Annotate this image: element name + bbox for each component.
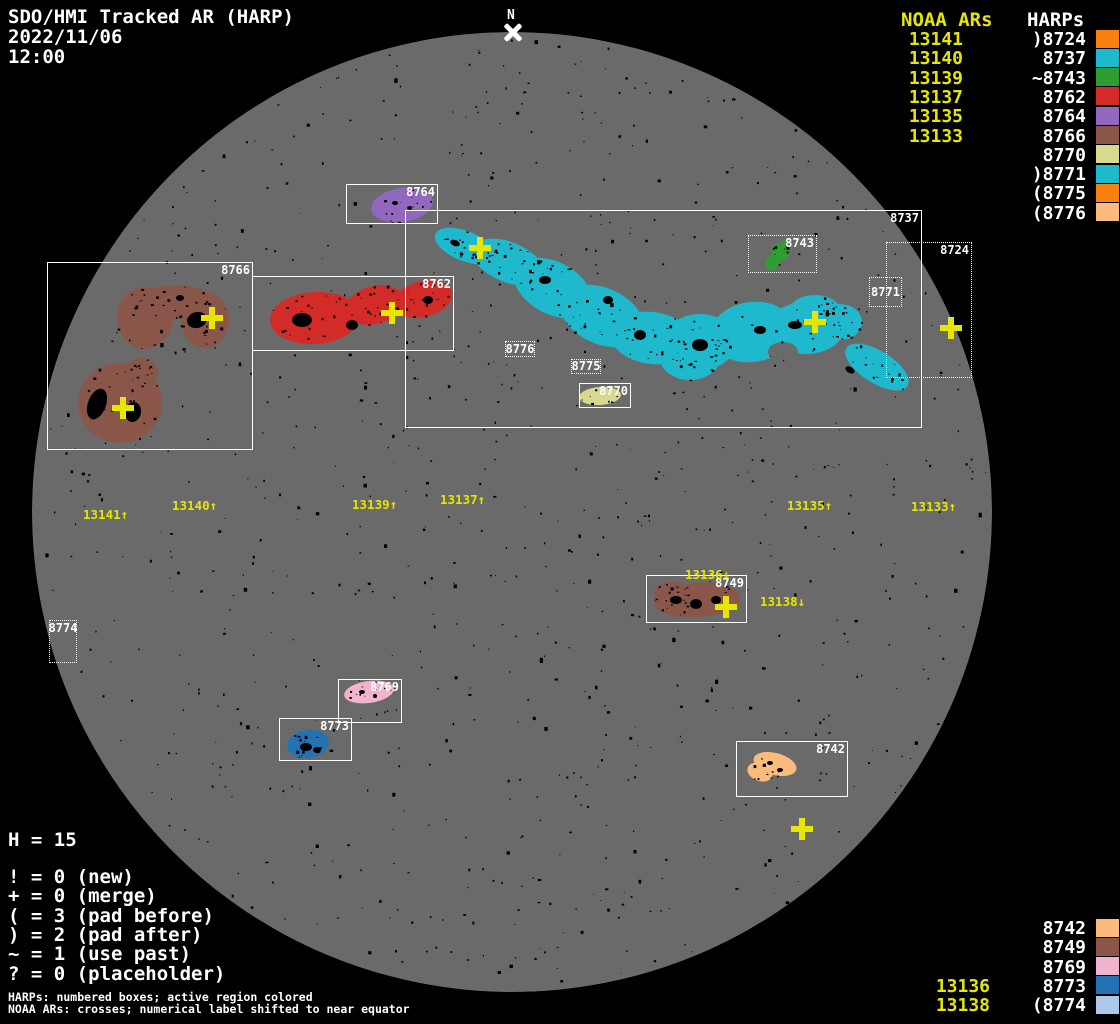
harp-item: (8774	[1022, 995, 1086, 1016]
legend-line: ? = 0 (placeholder)	[8, 963, 225, 985]
noaa-cross-13136	[715, 596, 737, 618]
harp-color-swatch	[1096, 107, 1119, 125]
noaa-ar-label: 13141↑	[83, 507, 128, 522]
harp-box-8724: 8724	[886, 242, 972, 378]
harp-box-label-8764: 8764	[406, 186, 435, 199]
noaa-ar-label: 13133↑	[911, 499, 956, 514]
noaa-cross-13139	[381, 302, 403, 324]
harp-item: 8737	[1022, 48, 1086, 69]
harp-color-swatch	[1096, 976, 1119, 994]
harp-box-label-8766: 8766	[221, 264, 250, 277]
harp-box-label-8742: 8742	[816, 743, 845, 756]
harp-box-8774: 8774	[49, 620, 77, 663]
harp-color-swatch	[1096, 145, 1119, 163]
harp-box-label-8776: 8776	[506, 342, 534, 356]
sdo-hmi-harp-plot: { "colors": { "background": "#000000", "…	[0, 0, 1120, 1024]
harp-box-label-8743: 8743	[785, 237, 814, 250]
harp-color-swatch	[1096, 30, 1119, 48]
noaa-cross-13138	[791, 818, 813, 840]
noaa-ar-label: 13135↑	[787, 498, 832, 513]
harp-item: 8773	[1022, 976, 1086, 997]
noaa-ar-label: 13138↓	[760, 594, 805, 609]
harp-color-swatch	[1096, 126, 1119, 144]
harp-item: )8771	[1022, 164, 1086, 185]
harp-color-swatch	[1096, 68, 1119, 86]
noaa-ar-item: 13137	[903, 87, 963, 108]
noaa-ar-item: 13133	[903, 126, 963, 147]
harp-box-8769: 8769	[338, 679, 402, 723]
harp-box-8775: 8775	[571, 359, 601, 374]
harp-item: 8766	[1022, 126, 1086, 147]
annotation-overlay: 8764876687628737877087498769877387428743…	[0, 0, 1120, 1024]
noaa-ar-label: 13137↑	[440, 492, 485, 507]
noaa-ar-item: 13138	[930, 995, 990, 1016]
plot-time: 12:00	[8, 46, 65, 68]
noaa-ar-label: 13140↑	[172, 498, 217, 513]
harp-color-swatch	[1096, 184, 1119, 202]
harp-box-8776: 8776	[505, 341, 535, 357]
harp-color-swatch	[1096, 87, 1119, 105]
harp-box-8743: 8743	[748, 235, 817, 273]
harp-box-label-8770: 8770	[599, 385, 628, 398]
harp-box-8771: 8771	[869, 277, 902, 307]
harp-box-label-8774: 8774	[50, 621, 76, 662]
harp-item: (8776	[1022, 203, 1086, 224]
harp-count: H = 15	[8, 829, 77, 851]
harp-color-swatch	[1096, 938, 1119, 956]
noaa-ar-label: 13136↓	[685, 567, 730, 582]
noaa-ar-label: 13139↑	[352, 497, 397, 512]
harp-item: 8749	[1022, 937, 1086, 958]
noaa-ar-item: 13140	[903, 48, 963, 69]
noaa-ar-item: 13136	[930, 976, 990, 997]
harp-box-8742: 8742	[736, 741, 848, 797]
noaa-ar-item: 13139	[903, 68, 963, 89]
harp-color-swatch	[1096, 996, 1119, 1014]
harp-item: 8769	[1022, 957, 1086, 978]
harp-color-swatch	[1096, 203, 1119, 221]
harp-box-8766: 8766	[47, 262, 253, 450]
noaa-cross-13137	[469, 237, 491, 259]
harp-item: )8724	[1022, 29, 1086, 50]
noaa-cross-13135	[804, 311, 826, 333]
harp-color-swatch	[1096, 49, 1119, 67]
noaa-cross-13141	[112, 397, 134, 419]
harp-box-label-8773: 8773	[320, 720, 349, 733]
noaa-ars-header: NOAA ARs	[901, 9, 993, 31]
north-x-icon	[502, 22, 524, 44]
harp-item: (8775	[1022, 183, 1086, 204]
harp-box-label-8771: 8771	[870, 278, 901, 306]
footnote-line: NOAA ARs: crosses; numerical label shift…	[8, 1002, 410, 1016]
noaa-ar-item: 13141	[903, 29, 963, 50]
harps-header: HARPs	[1027, 9, 1084, 31]
harp-item: ~8743	[1022, 68, 1086, 89]
harp-color-swatch	[1096, 165, 1119, 183]
harp-color-swatch	[1096, 957, 1119, 975]
harp-box-label-8775: 8775	[572, 360, 600, 373]
harp-item: 8770	[1022, 145, 1086, 166]
plot-title: SDO/HMI Tracked AR (HARP)	[8, 6, 294, 28]
harp-box-label-8769: 8769	[370, 681, 399, 694]
harp-box-8770: 8770	[579, 383, 631, 408]
plot-date: 2022/11/06	[8, 26, 122, 48]
harp-item: 8764	[1022, 106, 1086, 127]
harp-item: 8762	[1022, 87, 1086, 108]
noaa-ar-item: 13135	[903, 106, 963, 127]
harp-item: 8742	[1022, 918, 1086, 939]
noaa-cross-13133	[940, 317, 962, 339]
north-label: N	[507, 8, 515, 23]
noaa-cross-13140	[201, 307, 223, 329]
harp-color-swatch	[1096, 919, 1119, 937]
harp-box-8773: 8773	[279, 718, 352, 761]
harp-box-label-8724: 8724	[940, 244, 969, 257]
harp-box-label-8737: 8737	[890, 212, 919, 225]
